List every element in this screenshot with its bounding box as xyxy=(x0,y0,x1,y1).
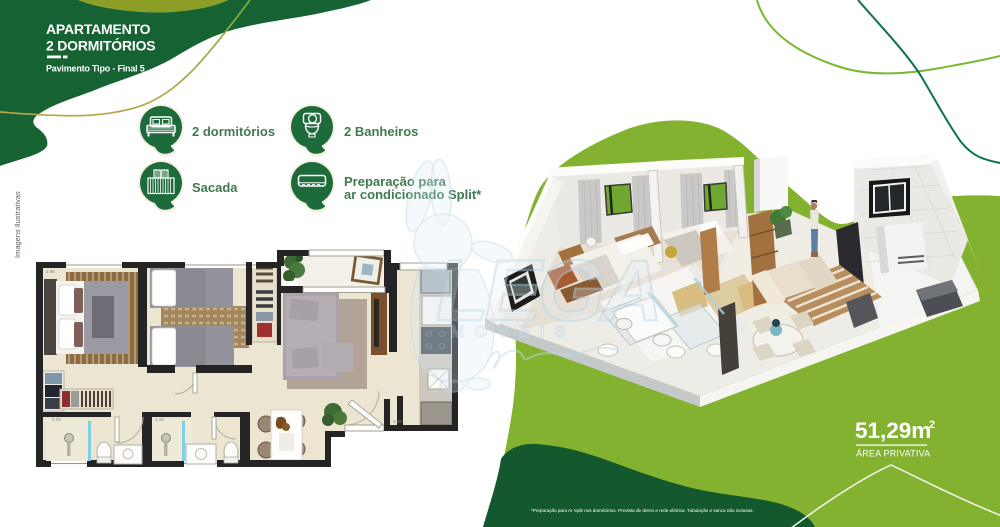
svg-text:MOVEIS: MOVEIS xyxy=(450,322,576,341)
svg-text:3.48: 3.48 xyxy=(393,419,402,424)
svg-text:2: 2 xyxy=(929,419,935,431)
svg-text:*Preparação para Ar Split nos: *Preparação para Ar Split nos dormitório… xyxy=(531,508,754,513)
svg-text:2 DORMITÓRIOS: 2 DORMITÓRIOS xyxy=(46,37,155,54)
svg-text:Sacada: Sacada xyxy=(192,180,238,195)
svg-text:51,29m: 51,29m xyxy=(855,418,931,443)
svg-text:2.98: 2.98 xyxy=(46,269,55,274)
svg-text:Pavimento Tipo - Final 5: Pavimento Tipo - Final 5 xyxy=(46,64,145,74)
svg-text:2.28: 2.28 xyxy=(52,417,61,422)
svg-text:Imagens Ilustrativas: Imagens Ilustrativas xyxy=(13,191,22,258)
svg-text:2 Banheiros: 2 Banheiros xyxy=(344,124,418,139)
svg-text:APARTAMENTO: APARTAMENTO xyxy=(46,21,151,37)
svg-text:2 dormitórios: 2 dormitórios xyxy=(192,124,275,139)
svg-text:2.16: 2.16 xyxy=(155,417,164,422)
svg-text:ÁREA PRIVATIVA: ÁREA PRIVATIVA xyxy=(856,449,930,459)
